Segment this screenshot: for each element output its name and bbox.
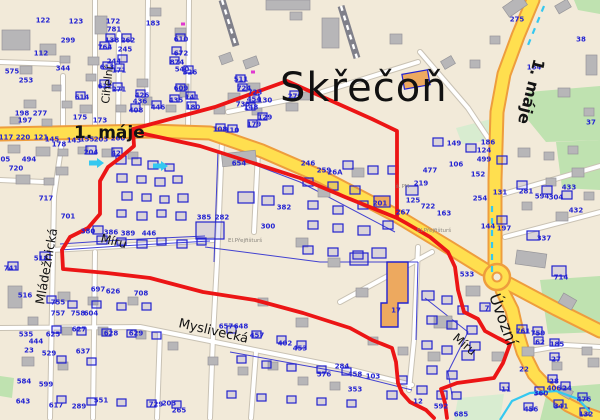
house-number: 457 <box>250 332 265 340</box>
cadastre-building <box>262 196 274 205</box>
house-number: 125 <box>406 197 421 205</box>
building <box>20 66 32 74</box>
house-number: 245 <box>118 46 133 54</box>
cadastre-building <box>427 366 437 374</box>
house-number: 764 <box>98 44 113 52</box>
building <box>166 105 176 112</box>
cadastre-building <box>383 221 393 229</box>
house-number: 617 <box>49 402 64 410</box>
building <box>80 105 92 113</box>
building <box>298 377 308 385</box>
cadastre-building <box>142 194 151 201</box>
house-number: 12 <box>413 398 423 406</box>
house-number: 494 <box>22 156 37 164</box>
house-number: 163 <box>437 210 452 218</box>
cadastre-building <box>422 291 434 300</box>
cadastre-building <box>347 400 356 407</box>
house-number: 594 <box>535 193 550 201</box>
cadastre-building <box>350 253 368 265</box>
house-number: 185 <box>550 341 565 349</box>
house-number: 599 <box>39 381 54 389</box>
house-number: 654 <box>232 160 247 168</box>
house-number: 382 <box>277 204 292 212</box>
house-number: 304 <box>549 194 564 202</box>
house-number: 499 <box>477 156 492 164</box>
house-number: 254 <box>473 195 488 203</box>
cadastre-building <box>196 222 224 239</box>
building <box>28 317 38 325</box>
house-number: 131 <box>493 189 508 197</box>
house-number: 186 <box>481 139 496 147</box>
green-area <box>0 376 14 398</box>
house-number: 117 <box>0 134 13 142</box>
building <box>238 367 248 375</box>
cadastre-building <box>467 326 477 334</box>
house-number: 141 <box>185 94 200 102</box>
cadastre-building <box>447 321 457 329</box>
house-number: 123 <box>69 18 84 26</box>
building <box>290 12 302 20</box>
house-number: 27 <box>551 356 561 364</box>
street-label-mladeznicka: Mládežnická <box>32 227 60 305</box>
building <box>322 18 339 48</box>
street-label-1maje-west: 1. máje <box>74 123 145 143</box>
cadastre-building <box>117 210 126 217</box>
public-building-l-shape <box>381 262 408 327</box>
house-number: 643 <box>16 398 31 406</box>
building <box>168 342 178 350</box>
cadastre-building <box>132 158 141 165</box>
house-number: 551 <box>94 397 109 405</box>
house-number: 341 <box>554 403 569 411</box>
house-number: 592 <box>434 403 449 411</box>
house-number: 326 <box>183 69 198 77</box>
house-number: 516 <box>18 292 33 300</box>
building <box>86 74 96 81</box>
building <box>243 56 259 69</box>
building <box>88 57 99 65</box>
cadastre-building <box>173 176 182 183</box>
building <box>137 79 148 87</box>
house-number: 685 <box>454 411 469 419</box>
building <box>208 357 218 365</box>
house-number: 197 <box>497 225 512 233</box>
cadastre-building <box>287 364 296 371</box>
house-number: 300 <box>261 223 276 231</box>
cadastre-building <box>333 206 343 214</box>
building <box>555 0 572 14</box>
poi-label-small-3: š. PM <box>396 183 409 190</box>
building <box>2 30 30 50</box>
cadastre-building <box>142 303 151 310</box>
house-number: 781 <box>107 26 122 34</box>
building <box>556 212 568 221</box>
house-number: 37 <box>586 119 596 127</box>
house-number: 722 <box>421 203 436 211</box>
building <box>515 250 547 268</box>
building <box>518 148 530 157</box>
house-number: 130 <box>258 97 273 105</box>
house-number: 446 <box>142 230 157 238</box>
house-number: 103 <box>366 373 381 381</box>
map-viewport[interactable]: 1221231727811382627642452991836101125753… <box>0 0 600 420</box>
house-number: 614 <box>75 94 90 102</box>
building <box>328 258 340 267</box>
house-number: 62 <box>535 339 545 347</box>
house-number: 741 <box>4 265 19 273</box>
building <box>266 0 310 10</box>
house-number: 253 <box>19 77 34 85</box>
building <box>16 175 30 184</box>
cadastre-building <box>303 246 313 254</box>
house-number: 220 <box>16 134 31 142</box>
street-label-cihelni: Cihelní <box>99 65 116 105</box>
house-number: 672 <box>174 50 189 58</box>
cadastre-building <box>178 194 188 202</box>
cadastre-building <box>117 399 126 406</box>
house-number: 262 <box>121 37 136 45</box>
minor-road <box>210 142 222 418</box>
house-number: 456 <box>524 406 539 414</box>
building <box>219 52 233 65</box>
cadastre-building <box>562 191 572 199</box>
house-number: 697 <box>91 286 106 294</box>
house-number: 201 <box>373 200 388 208</box>
building <box>522 347 534 356</box>
district-title: Skřečoň <box>280 65 448 111</box>
house-number: 627 <box>72 326 87 334</box>
building <box>36 147 50 156</box>
building <box>22 357 34 366</box>
house-number: 360 <box>534 390 549 398</box>
house-number: 609 <box>174 85 189 93</box>
building <box>62 327 72 335</box>
cadastre-building <box>157 210 166 217</box>
building <box>24 100 36 108</box>
house-number: 179 <box>247 121 262 129</box>
cadastre-building <box>57 356 66 363</box>
cadastre-building <box>350 186 360 194</box>
house-number: 433 <box>562 184 577 192</box>
house-number: 275 <box>510 16 525 24</box>
house-number: 124 <box>477 147 492 155</box>
cadastre-building <box>317 398 326 405</box>
house-number: 26A <box>327 169 343 177</box>
poi-label-small-2: El.Přejfišturš <box>417 227 451 234</box>
minor-road <box>93 252 95 418</box>
building <box>150 8 161 16</box>
cadastre-building <box>452 392 461 399</box>
building <box>470 60 480 68</box>
cadastre-building <box>433 138 443 146</box>
building <box>52 85 61 91</box>
cadastre-building <box>343 161 353 169</box>
house-number: 637 <box>76 348 91 356</box>
house-number: 717 <box>39 195 54 203</box>
minor-road <box>251 352 256 418</box>
cadastre-building <box>177 240 187 248</box>
cadastre-building <box>157 238 166 245</box>
house-number: 148 <box>244 104 259 112</box>
house-number: 576 <box>317 371 332 379</box>
building <box>490 36 500 44</box>
building <box>586 55 597 75</box>
house-number: 23 <box>24 347 34 355</box>
house-number: 626 <box>106 288 121 296</box>
house-number: 604 <box>84 310 99 318</box>
house-number: 584 <box>17 378 32 386</box>
house-number: 708 <box>134 290 149 298</box>
building <box>522 202 532 210</box>
house-number: 281 <box>519 188 534 196</box>
building <box>330 382 340 390</box>
house-number: 408 <box>129 107 144 115</box>
building <box>356 288 368 297</box>
house-number: 432 <box>569 207 584 215</box>
building <box>128 297 138 305</box>
cadastre-building <box>497 216 507 224</box>
building <box>116 105 126 112</box>
building <box>572 168 584 177</box>
building <box>582 347 592 355</box>
building <box>398 347 408 355</box>
house-number: 132 <box>579 411 594 419</box>
house-number: 759 <box>531 330 546 338</box>
house-number: 277 <box>33 110 48 118</box>
house-number: 714 <box>554 274 569 282</box>
poi-dot <box>251 71 255 74</box>
cadastre-building <box>466 144 476 152</box>
poi-label-small-1: El.Přejfišturš <box>228 237 262 244</box>
house-number: 435 <box>169 97 184 105</box>
house-number: 106 <box>449 161 464 169</box>
house-number: 219 <box>414 180 429 188</box>
house-number: 353 <box>348 386 363 394</box>
cadastre-building <box>287 396 296 403</box>
building <box>8 145 20 153</box>
building <box>558 88 570 97</box>
house-number: 178 <box>52 141 67 149</box>
cadastre-building <box>117 174 127 182</box>
house-number: 11 <box>501 386 511 394</box>
building <box>42 119 52 126</box>
house-number: 42 <box>111 150 121 158</box>
cadastre-building <box>155 178 165 186</box>
building <box>466 286 480 296</box>
oneway-arrow-icon <box>89 158 104 168</box>
house-number: 122 <box>36 17 51 25</box>
house-number: 282 <box>215 214 230 222</box>
house-number: 380 <box>81 228 96 236</box>
house-number: 180 <box>186 104 201 112</box>
house-number: 24 <box>562 385 572 393</box>
house-number: 402 <box>278 340 293 348</box>
building <box>568 146 578 154</box>
green-area <box>574 0 600 14</box>
cadastre-building <box>160 196 169 203</box>
house-number: 17 <box>391 307 401 315</box>
building <box>584 108 594 116</box>
house-number: 406 <box>547 385 562 393</box>
house-number: 444 <box>29 338 44 346</box>
building <box>544 152 554 160</box>
house-number: 757 <box>51 310 66 318</box>
house-number: 720 <box>9 165 24 173</box>
cadastre-building <box>92 301 101 308</box>
house-number: 299 <box>61 37 76 45</box>
house-number: 453 <box>293 345 308 353</box>
house-number: 152 <box>471 171 486 179</box>
building <box>390 34 402 44</box>
house-number: 511 <box>234 76 249 84</box>
building <box>588 358 599 367</box>
cadastre-building <box>447 371 457 379</box>
house-number: 246 <box>301 160 316 168</box>
house-number: 458 <box>348 371 363 379</box>
building <box>428 352 440 361</box>
house-number: 175 <box>73 114 88 122</box>
map-canvas[interactable]: 1221231727811382627642452991836101125753… <box>0 0 600 420</box>
cadastre-building <box>137 176 146 183</box>
house-number: 110 <box>225 127 240 135</box>
cadastre-building <box>368 166 378 174</box>
cadastre-building <box>262 361 271 368</box>
building <box>296 318 308 327</box>
cadastre-building <box>308 201 318 209</box>
cadastre-building <box>422 341 432 349</box>
house-number: 22 <box>519 366 529 374</box>
house-number: 436 <box>133 98 148 106</box>
house-number: 172 <box>106 18 121 26</box>
house-number: 610 <box>174 36 189 44</box>
house-number: 267 <box>396 209 411 217</box>
house-number: 197 <box>18 117 33 125</box>
cadastre-building <box>257 394 266 401</box>
cadastre-building <box>417 386 427 394</box>
house-number: 265 <box>172 407 187 415</box>
cadastre-building <box>497 156 507 164</box>
cadastre-building <box>87 358 96 365</box>
house-number: 476 <box>577 396 592 404</box>
house-number: 244 <box>107 58 122 66</box>
cadastre-building <box>238 192 254 203</box>
cadastre-building <box>358 226 370 235</box>
cadastre-building <box>176 212 186 220</box>
house-number: 112 <box>34 50 49 58</box>
house-number: 205 <box>0 156 10 164</box>
cadastre-building <box>333 224 343 232</box>
building <box>546 178 556 186</box>
house-number: 289 <box>72 403 87 411</box>
minor-road <box>505 212 600 237</box>
cadastre-building <box>372 248 386 258</box>
house-number: 183 <box>146 20 161 28</box>
house-number: 628 <box>104 330 119 338</box>
house-number: 446 <box>151 104 166 112</box>
building <box>62 101 72 108</box>
house-number: 284 <box>335 363 350 371</box>
house-number: 271 <box>112 86 127 94</box>
house-number: 529 <box>42 350 57 358</box>
roundabout-island <box>493 273 502 282</box>
minor-road <box>0 62 58 64</box>
cadastre-building <box>137 212 147 220</box>
house-number: 385 <box>197 214 212 222</box>
cadastre-building <box>227 391 236 398</box>
house-number: 755 <box>51 299 66 307</box>
house-number: 337 <box>537 235 552 243</box>
house-number: 874 <box>170 59 185 67</box>
cadastre-building <box>328 248 338 256</box>
cadastre-building <box>68 301 77 308</box>
house-number: 144 <box>481 223 496 231</box>
cadastre-building <box>137 240 147 248</box>
cadastre-building <box>117 303 126 310</box>
house-number: 701 <box>61 213 76 221</box>
house-number: 533 <box>460 271 475 279</box>
cadastre-building <box>152 332 161 339</box>
building <box>58 149 68 156</box>
cadastre-building <box>283 186 293 194</box>
cadastre-building <box>442 346 452 354</box>
building <box>60 56 70 63</box>
building <box>352 168 364 177</box>
house-number: 575 <box>5 68 20 76</box>
building <box>56 167 68 175</box>
house-number: 204 <box>84 149 99 157</box>
building <box>584 192 594 200</box>
cadastre-building <box>237 356 246 363</box>
building <box>492 352 504 361</box>
house-number: 625 <box>46 331 61 339</box>
cadastre-building <box>387 391 397 399</box>
house-number: 38 <box>576 36 586 44</box>
house-number: 344 <box>56 65 71 73</box>
building <box>44 178 54 185</box>
railway-track <box>341 6 357 58</box>
house-number: 477 <box>423 167 438 175</box>
poi-dot <box>181 23 185 26</box>
cadastre-building <box>308 221 318 229</box>
cadastre-building <box>442 296 452 304</box>
house-number: 149 <box>447 140 462 148</box>
cadastre-building <box>427 316 437 324</box>
cadastre-building <box>122 192 132 200</box>
house-number: 629 <box>129 330 144 338</box>
